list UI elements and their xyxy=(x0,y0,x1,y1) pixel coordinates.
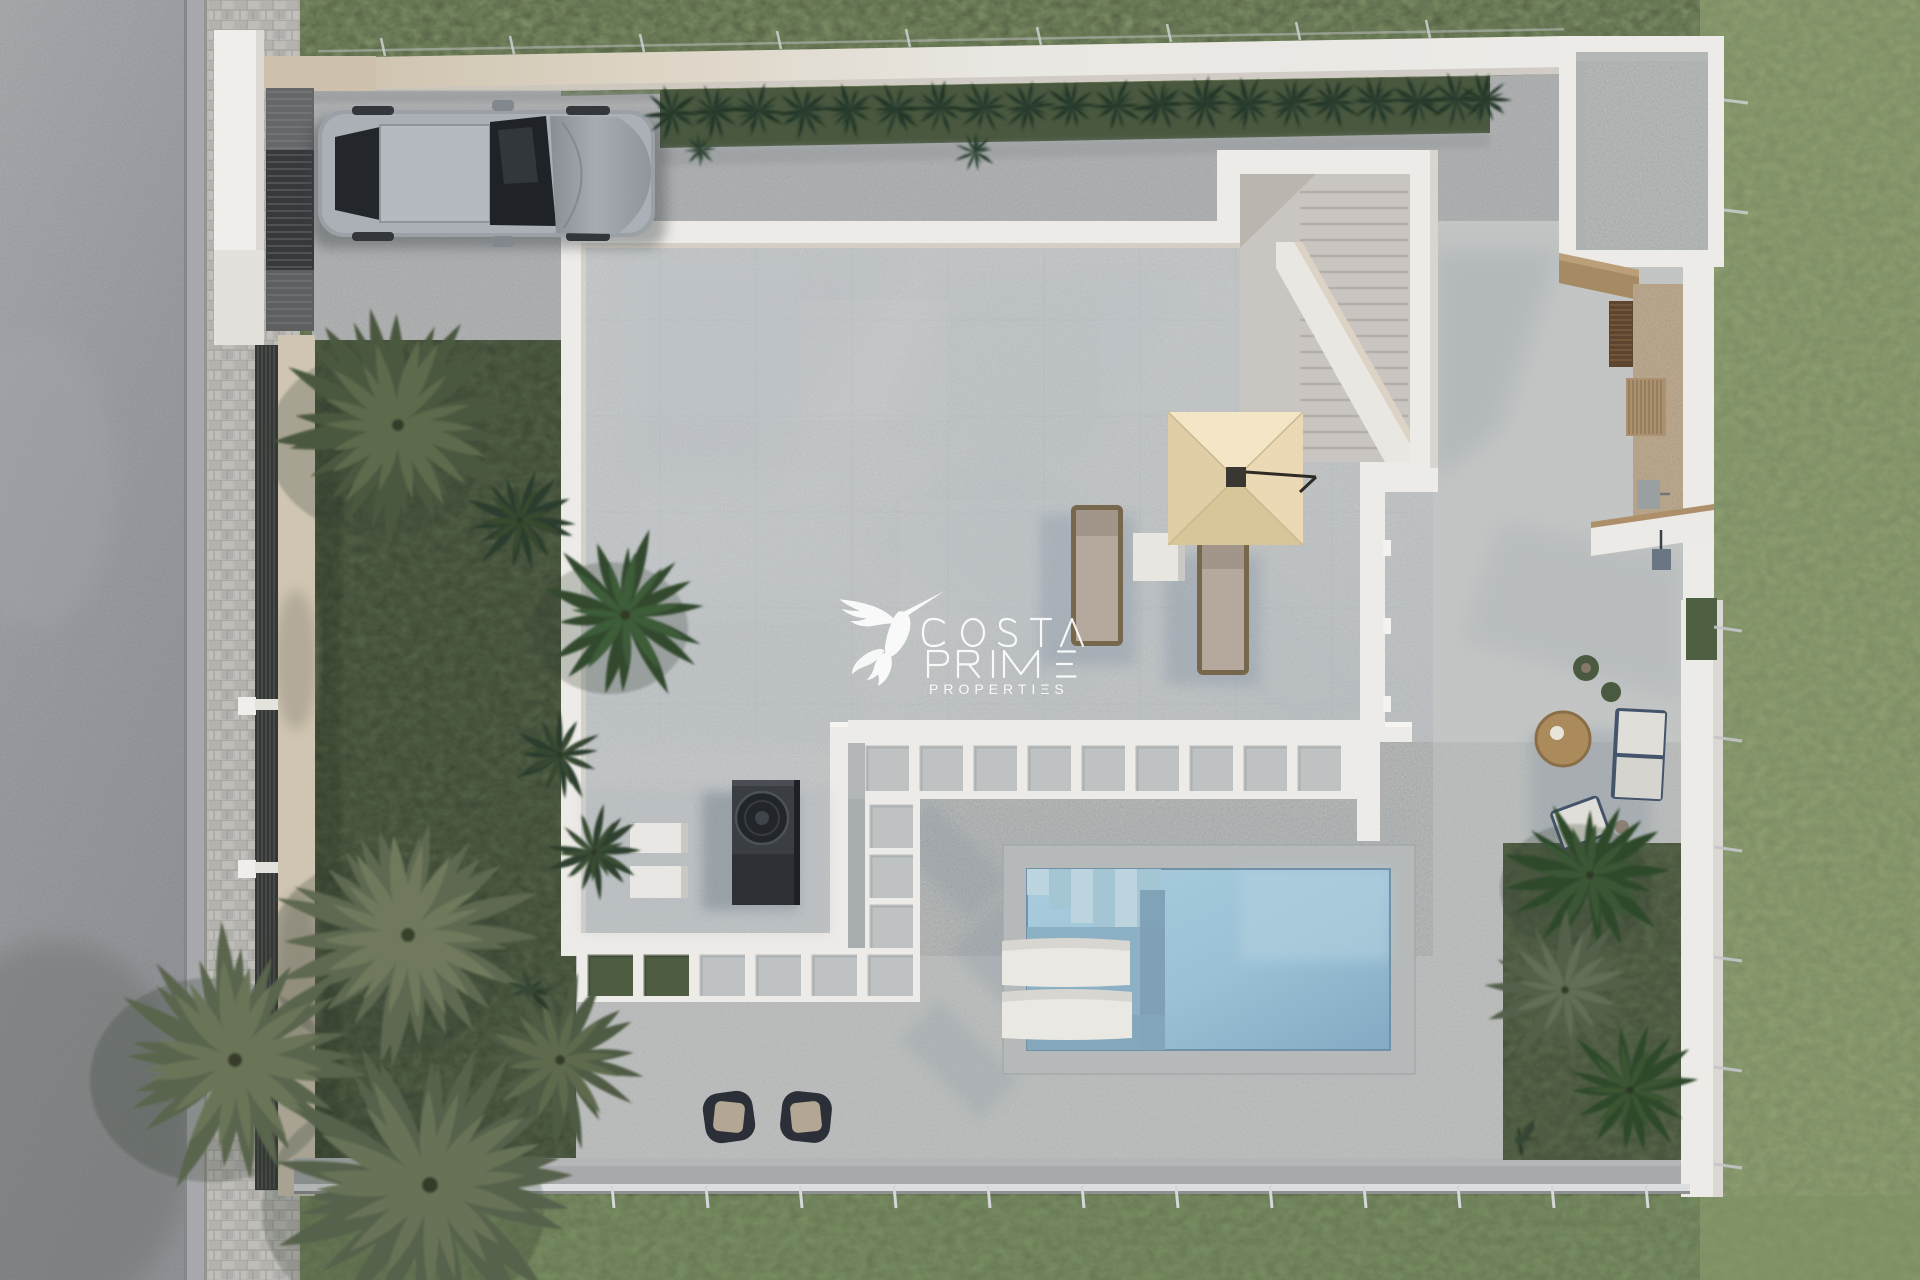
svg-text:PROPERTIΞS: PROPERTIΞS xyxy=(929,681,1069,697)
